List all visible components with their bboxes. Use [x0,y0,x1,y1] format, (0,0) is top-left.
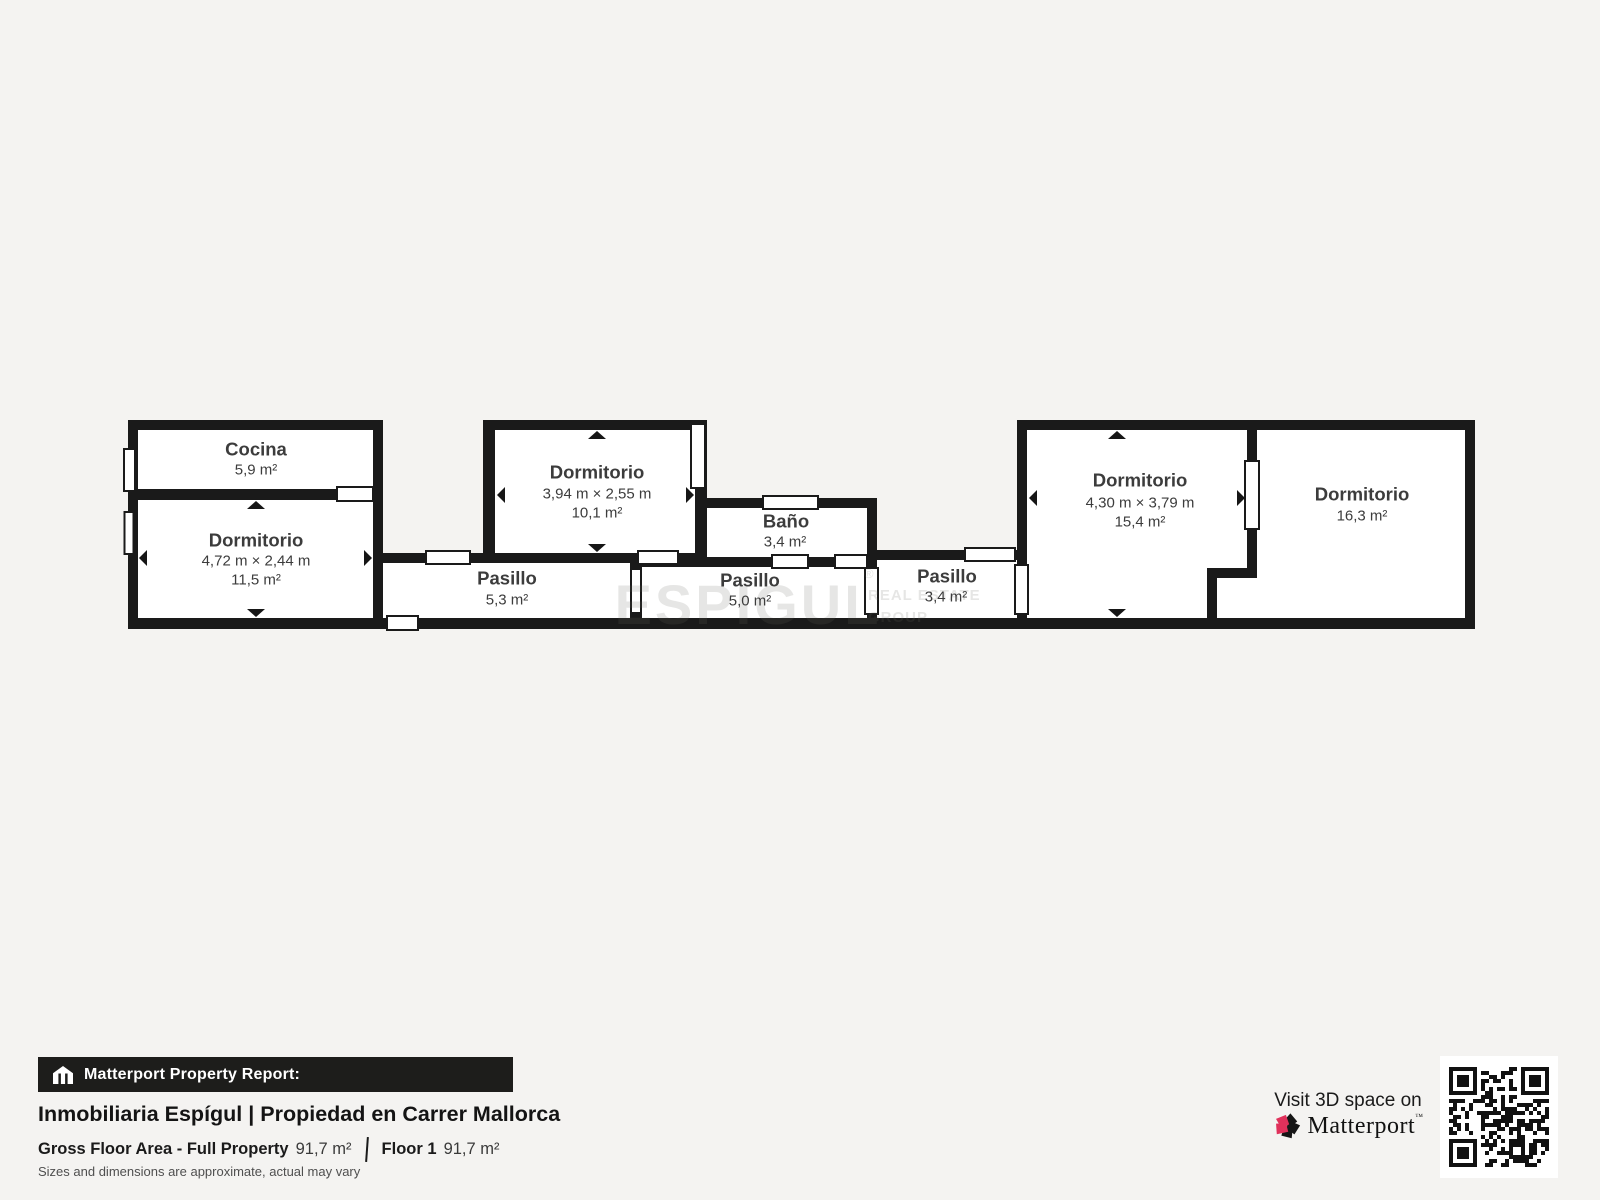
trademark-mark: ™ [1415,1112,1423,1121]
window [124,449,135,491]
door-opening [835,555,867,568]
matterport-wordmark-text: Matterport [1308,1113,1416,1139]
room-area-cocina: 5,9 m² [235,462,278,479]
room-area-bano: 3,4 m² [764,534,807,551]
gfa-value: 91,7 m² [296,1140,352,1159]
floor-label: Floor 1 [382,1140,437,1159]
matterport-floor-plan-report: { "watermark": { "brand": "ESPIGUL", "re… [0,0,1600,1200]
dormitorio4-floor-notch [1217,578,1265,618]
wall [373,420,383,629]
room-dims-dormitorio2: 3,94 m × 2,55 m [543,486,652,503]
matterport-pinwheel-icon [1273,1112,1301,1140]
floor-value: 91,7 m² [444,1140,500,1159]
window [763,496,818,509]
wall [483,420,495,563]
room-area-dormitorio2: 10,1 m² [572,505,623,522]
watermark-sub2: GROUP [868,609,928,626]
disclaimer-text: Sizes and dimensions are approximate, ac… [38,1164,360,1179]
wall [483,420,707,430]
window [125,512,134,554]
wall [1207,568,1217,618]
wall [1465,420,1475,629]
qr-code [1440,1056,1558,1178]
room-label-dormitorio4: Dormitorio [1315,484,1410,505]
door-opening [965,548,1015,561]
house-report-icon [53,1066,73,1084]
watermark-registered-mark: ® [864,566,874,581]
door-opening [337,487,373,501]
room-label-dormitorio3: Dormitorio [1093,470,1188,491]
room-label-dormitorio2: Dormitorio [550,462,645,483]
gfa-label: Gross Floor Area - Full Property [38,1140,289,1159]
room-area-pasillo2: 5,0 m² [729,593,772,610]
room-label-pasillo1: Pasillo [477,568,537,589]
room-area-pasillo3: 3,4 m² [925,589,968,606]
room-dims-dormitorio3: 4,30 m × 3,79 m [1086,495,1195,512]
room-area-pasillo1: 5,3 m² [486,592,529,609]
matterport-wordmark: Matterport™ [1308,1112,1424,1140]
window [691,424,705,488]
room-area-dormitorio1: 11,5 m² [231,572,281,589]
room-area-dormitorio3: 15,4 m² [1115,514,1166,531]
visit-3d-space-text: Visit 3D space on [1252,1090,1444,1112]
room-label-pasillo2: Pasillo [720,570,780,591]
door-opening [1015,565,1028,614]
floor-plan: ESPIGUL ® REAL ESTATE GROUP Cocina 5,9 m… [0,0,1600,1200]
wall [128,420,383,430]
room-dims-dormitorio1: 4,72 m × 2,44 m [202,553,311,570]
wall [1017,420,1475,430]
door-opening [387,616,418,630]
door-opening [426,551,470,564]
room-label-dormitorio1: Dormitorio [209,530,304,551]
room-label-pasillo3: Pasillo [917,566,977,587]
property-title: Inmobiliaria Espígul | Propiedad en Carr… [38,1102,560,1127]
report-banner-label: Matterport Property Report: [84,1066,300,1084]
door-opening [772,555,808,568]
floor-area-summary: Gross Floor Area - Full Property 91,7 m²… [38,1136,500,1162]
report-banner: Matterport Property Report: [38,1057,513,1092]
room-area-dormitorio4: 16,3 m² [1337,508,1388,525]
room-label-cocina: Cocina [225,439,287,460]
divider [365,1136,369,1161]
room-label-bano: Baño [763,511,809,532]
door-opening [1245,461,1259,529]
qr-code-pattern [1449,1067,1549,1167]
door-opening [638,551,678,564]
wall [128,618,383,629]
matterport-logo: Matterport™ [1252,1112,1444,1140]
wall [1017,618,1475,629]
